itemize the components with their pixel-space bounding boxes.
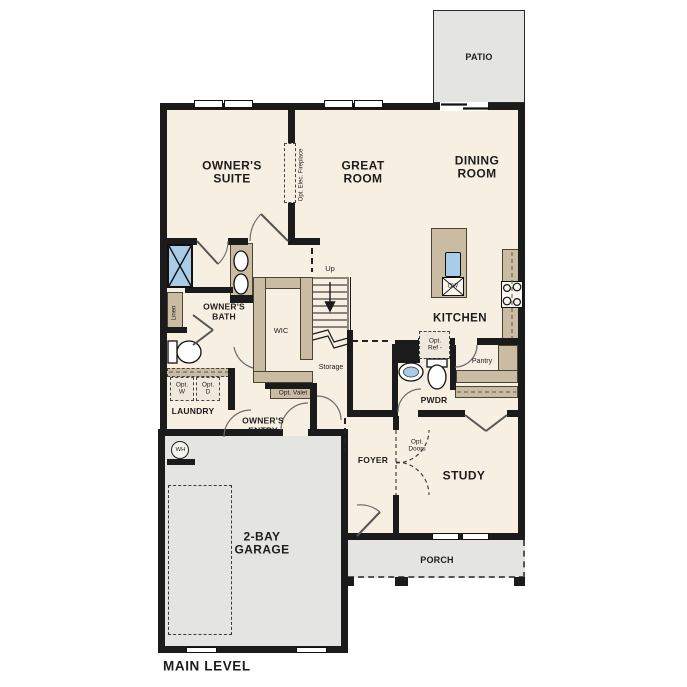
linen-label: Linen: [172, 306, 179, 321]
opt-doors-label: Opt. Doors: [408, 439, 425, 454]
porch-stub-mid: [395, 577, 408, 586]
wall-pwdr-mass: [395, 340, 420, 363]
wic-shelf-bottom: [253, 371, 313, 383]
room-label-owners-bath: OWNER'S BATH: [203, 302, 245, 321]
room-label-great-room: GREAT ROOM: [341, 160, 384, 187]
room-label-patio: PATIO: [465, 52, 492, 62]
study-window-2: [462, 533, 489, 540]
wall-garage-right: [341, 436, 348, 653]
hall-closet-shelf: [455, 386, 518, 398]
wall-laundry-right: [228, 368, 235, 410]
wall-foyer-study-a: [393, 416, 399, 430]
wall-wh-nook: [167, 459, 195, 465]
shower: [167, 244, 193, 288]
wall-study-top-a: [347, 410, 398, 417]
room-label-pantry: Pantry: [472, 358, 492, 366]
vanity-counter: [230, 243, 253, 296]
wall-pantry-left: [450, 345, 456, 390]
opt-fireplace-box: [284, 143, 296, 203]
floor-plan: PATIO OWNER'S SUITE GREAT ROOM DINING RO…: [0, 0, 687, 687]
wall-hall-stub: [295, 238, 320, 245]
water-heater-label: WH: [176, 447, 186, 453]
room-label-laundry: LAUNDRY: [172, 407, 215, 417]
laundry-counter: [167, 368, 229, 377]
room-label-garage: 2-BAY GARAGE: [234, 531, 289, 558]
wic-shelf-right: [300, 277, 313, 360]
wall-exterior-right: [518, 103, 525, 540]
patio-slider-gap: [440, 102, 488, 111]
room-label-storage: Storage: [319, 364, 344, 372]
pantry-shelf-right: [498, 345, 518, 372]
dishwasher-label: DW: [448, 284, 458, 291]
suite-window-2: [224, 100, 253, 108]
room-label-pwdr: PWDR: [421, 396, 448, 406]
opt-washer-label: Opt. W: [176, 382, 188, 397]
island-sink: [445, 252, 461, 277]
greatroom-window-1: [324, 100, 353, 108]
wic-shelf-left: [253, 277, 266, 383]
wall-pwdr-left: [392, 344, 398, 416]
stairs-up-label: Up: [325, 265, 335, 273]
opt-dryer-label: Opt. D: [202, 382, 214, 397]
room-label-dining-room: DINING ROOM: [455, 155, 499, 182]
room-label-foyer: FOYER: [358, 456, 388, 466]
range: [501, 281, 523, 308]
room-label-owners-suite: OWNER'S SUITE: [202, 160, 262, 187]
wall-stairs-right: [347, 330, 353, 416]
room-label-study: STUDY: [443, 469, 486, 482]
room-label-porch: PORCH: [420, 555, 454, 565]
foyer-study-floor: [348, 416, 518, 533]
opt-fireplace-label: Opt. Elec. Fireplace: [299, 149, 306, 202]
pantry-shelf-bottom: [456, 370, 518, 383]
wall-valet-top: [265, 383, 317, 389]
wall-study-top-b: [418, 410, 465, 417]
garage-dashed-zone: [168, 485, 232, 635]
porch-stub-right: [514, 577, 525, 586]
room-label-owners-entry: OWNER'S ENTRY: [242, 416, 284, 435]
greatroom-window-2: [354, 100, 383, 108]
study-window-1: [432, 533, 459, 540]
porch-stub-left: [341, 577, 354, 586]
wall-suite-bottom-b: [228, 238, 248, 245]
plan-title: MAIN LEVEL: [163, 658, 251, 673]
wall-exterior-left: [160, 103, 167, 436]
garage-door-2: [296, 647, 327, 653]
wall-entry-right: [310, 385, 317, 436]
wall-kitchen-bottom-b: [477, 338, 525, 345]
wall-linen-bottom: [167, 327, 187, 333]
room-label-wic: WIC: [274, 327, 289, 335]
opt-ref-label: Opt. Ref -: [428, 338, 442, 353]
wall-garage-left: [158, 436, 165, 653]
wall-foyer-study-b: [393, 495, 399, 533]
wall-study-top-c: [507, 410, 525, 417]
garage-door-1: [186, 647, 217, 653]
room-label-kitchen: KITCHEN: [433, 313, 487, 326]
opt-valet-label: Opt. Valet: [279, 389, 307, 396]
suite-window-1: [194, 100, 223, 108]
